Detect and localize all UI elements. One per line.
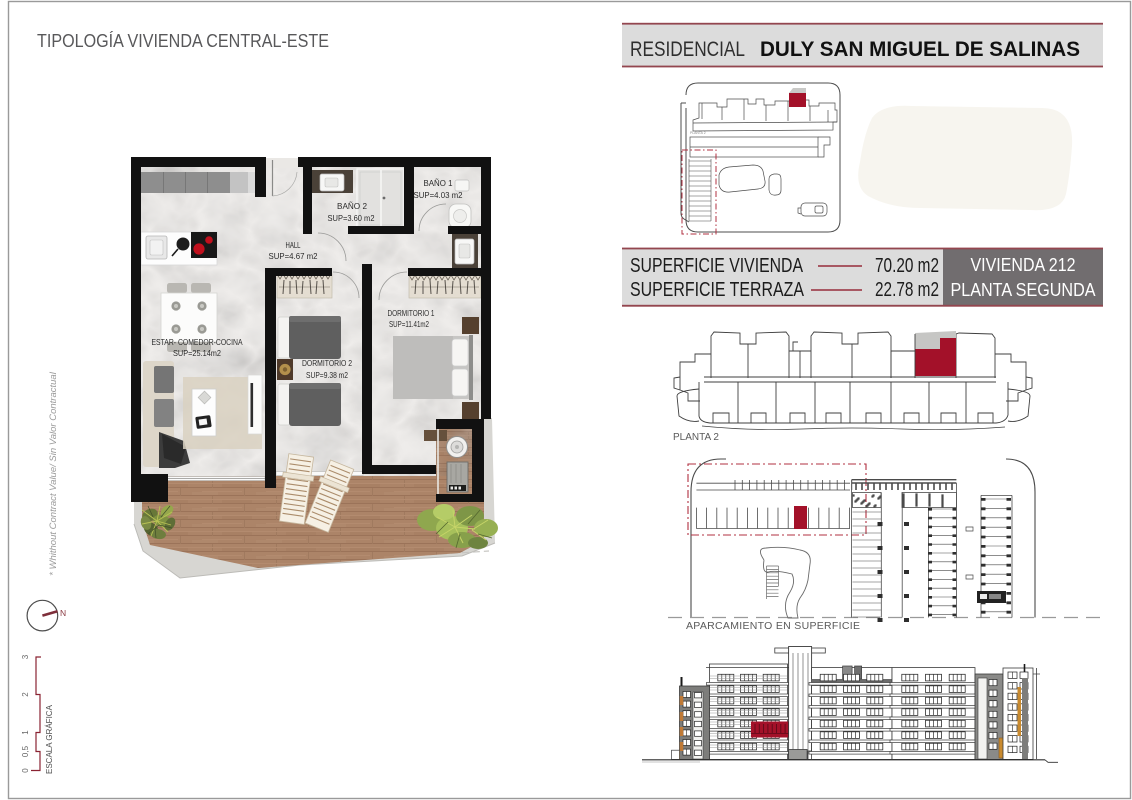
svg-text:DORMITORIO 1: DORMITORIO 1 <box>388 309 435 318</box>
svg-text:ESTAR- COMEDOR-COCINA: ESTAR- COMEDOR-COCINA <box>152 338 243 347</box>
svg-text:ESCALA GRÁFICA: ESCALA GRÁFICA <box>45 704 54 774</box>
svg-text:BAÑO 2: BAÑO 2 <box>337 201 367 211</box>
svg-text:SUP=4.03 m2: SUP=4.03 m2 <box>414 191 463 200</box>
svg-text:VIVIENDA 212: VIVIENDA 212 <box>971 254 1076 275</box>
svg-text:* Whithout Contract Value/ Sin: * Whithout Contract Value/ Sin Valor Con… <box>48 371 59 576</box>
svg-text:3: 3 <box>21 654 30 659</box>
svg-text:SUP=11.41m2: SUP=11.41m2 <box>389 320 429 329</box>
svg-text:PLANTA 2: PLANTA 2 <box>673 432 719 443</box>
svg-text:0: 0 <box>21 768 30 773</box>
svg-text:SUPERFICIE TERRAZA: SUPERFICIE TERRAZA <box>630 279 805 301</box>
svg-text:70.20 m2: 70.20 m2 <box>875 255 939 277</box>
svg-text:PLANTA 2: PLANTA 2 <box>690 131 706 135</box>
svg-text:BAÑO 1: BAÑO 1 <box>424 178 453 188</box>
svg-text:APARCAMIENTO EN SUPERFICIE: APARCAMIENTO EN SUPERFICIE <box>686 620 860 632</box>
svg-text:22.78 m2: 22.78 m2 <box>875 279 939 301</box>
svg-text:SUP=4.67 m2: SUP=4.67 m2 <box>269 252 318 261</box>
svg-text:DORMITORIO 2: DORMITORIO 2 <box>302 359 352 368</box>
svg-text:N: N <box>60 608 66 618</box>
svg-text:PLANTA SEGUNDA: PLANTA SEGUNDA <box>951 279 1097 300</box>
svg-text:RESIDENCIAL: RESIDENCIAL <box>630 37 745 61</box>
svg-text:SUP=3.60 m2: SUP=3.60 m2 <box>328 214 375 223</box>
svg-text:1: 1 <box>21 730 30 735</box>
svg-text:SUP=9.38 m2: SUP=9.38 m2 <box>306 371 348 380</box>
svg-text:SUP=25.14m2: SUP=25.14m2 <box>173 349 221 358</box>
svg-text:2: 2 <box>21 692 30 697</box>
svg-text:TIPOLOGÍA VIVIENDA CENTRAL-EST: TIPOLOGÍA VIVIENDA CENTRAL-ESTE <box>37 30 329 51</box>
svg-text:HALL: HALL <box>286 241 301 250</box>
svg-text:SUPERFICIE VIVIENDA: SUPERFICIE VIVIENDA <box>630 255 804 277</box>
svg-text:0,5: 0,5 <box>21 745 30 757</box>
svg-text:DULY SAN MIGUEL DE SALINAS: DULY SAN MIGUEL DE SALINAS <box>760 37 1080 61</box>
